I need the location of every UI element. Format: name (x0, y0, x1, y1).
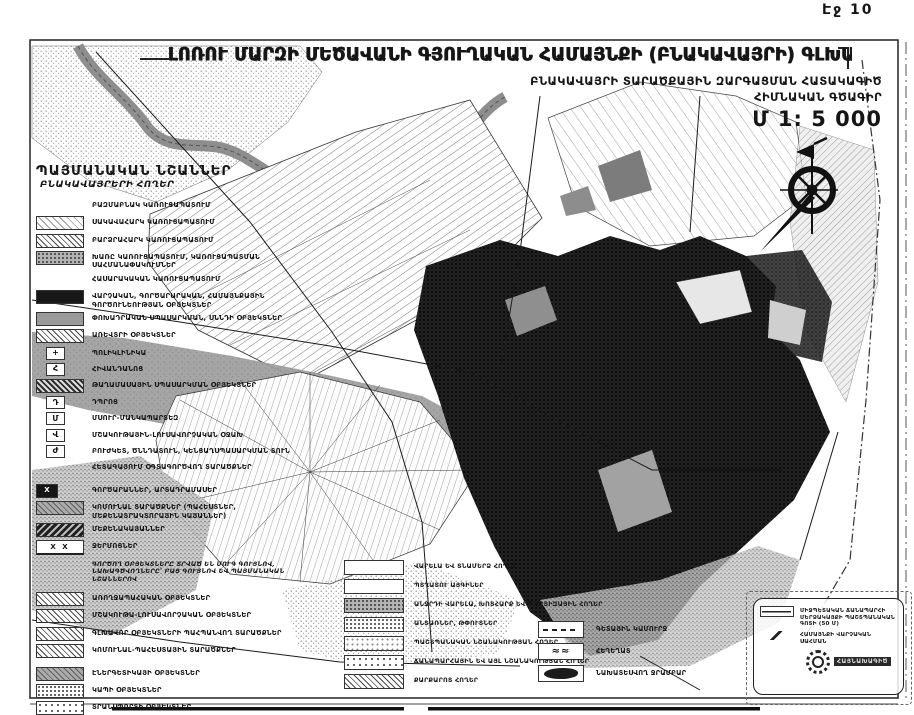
legend-item-label: ԳԵՏԱՅԻՆ ԿԱՄՈՒՐՋ (596, 621, 667, 633)
legend-swatch (344, 655, 404, 670)
legend-swatch (36, 523, 84, 537)
legend-swatch: X X (36, 540, 84, 555)
legend-item-label: ՀԱՄԱՅՆՔԻ ՎԱՐՉԱԿԱՆ ՍԱՀՄԱՆ (800, 630, 899, 645)
legend-swatch (36, 501, 84, 515)
legend-hydro-list: ԳԵՏԱՅԻՆ ԿԱՄՈՒՐՋ ≈≈ ՀԵՂԵՂԱՏ ՆԱԽԱՏԵՍՎՈՂ ՋՐ… (538, 616, 760, 682)
legend-item: ՎԱՐՉԱԿԱՆ, ԳՈՐԾԱՐԱՐԱԿԱՆ, ՀԱՄԱՅՆՔԱՅԻՆ ԳՈՐԾ… (36, 290, 298, 309)
legend-swatch-column: Ժ (36, 445, 92, 458)
legend-swatch: Վ (46, 429, 65, 442)
institute-logo-label: ՀԱՅՆԱԽԱԳԻԾ (834, 657, 891, 666)
legend-swatch-column (344, 636, 414, 651)
legend-item: ԷՆԵՐԳԵՏԻԿԱՅԻ ՕԲՅԵԿՏՆԵՐ (36, 667, 298, 681)
corner-box-list: ՄԻՋՊԵՏԱԿԱՆ ՃԱՆԱՊԱՐՀԻ ՄԵՐՁԱԿԱՅՔԻ ՊԱՇՏՊԱՆԱ… (760, 606, 899, 646)
legend-swatch-column (36, 609, 92, 623)
legend-item-label: ԱՌԵՎՏՐԻ ՕԲՅԵԿՏՆԵՐ (92, 329, 176, 339)
map-scale-label: Մ 1: 5 000 (468, 107, 882, 131)
legend-swatch (538, 665, 584, 682)
legend-swatch (344, 617, 404, 632)
legend-swatch-column (36, 684, 92, 698)
legend-swatch-column (538, 621, 596, 638)
gear-logo-icon (806, 650, 830, 674)
legend-swatch-column (344, 655, 414, 670)
legend-swatch-column (36, 216, 92, 230)
legend-swatch (36, 290, 84, 304)
legend-swatch-column (36, 592, 92, 606)
legend-swatch (344, 674, 404, 689)
legend-item-label: ԲԱԶՄԱԲՆԱԿ ԿԱՌՈՒՑԱՊԱՏՈՒՄ (92, 199, 211, 209)
legend-main: ՊԱՅՄԱՆԱԿԱՆ ՆՇԱՆՆԵՐ ԲՆԱԿԱՎԱՅՐԵՐԻ ՀՈՂԵՐ ԲԱ… (36, 163, 298, 715)
legend-swatch (36, 684, 84, 698)
legend-item-label: ԴՊՐՈՑ (92, 396, 118, 406)
legend-item-label: ՄԻՋՊԵՏԱԿԱՆ ՃԱՆԱՊԱՐՀԻ ՄԵՐՁԱԿԱՅՔԻ ՊԱՇՏՊԱՆԱ… (800, 606, 899, 628)
legend-item: ԱՌՈՂՋԱՊԱՀԱԿԱՆ ՕԲՅԵԿՏՆԵՐ (36, 592, 298, 606)
legend-swatch-column (36, 234, 92, 248)
legend-item: ՀԱՍԱՐԱԿԱԿԱՆ ԿԱՌՈՒՑԱՊԱՏՈՒՄ (36, 273, 298, 287)
legend-item: Մ ՄՍՈՒՐ-ՄԱՆԿԱՊԱՐՏԵԶ (36, 412, 298, 425)
legend-swatch-column (36, 290, 92, 304)
legend-swatch-column: ≈≈ (538, 643, 596, 660)
legend-item: ՄԻՋՊԵՏԱԿԱՆ ՃԱՆԱՊԱՐՀԻ ՄԵՐՁԱԿԱՅՔԻ ՊԱՇՏՊԱՆԱ… (760, 606, 899, 628)
legend-item: Դ ԴՊՐՈՑ (36, 396, 298, 409)
legend-item: ԳՈՐԾՈՂ ՕԲՅԵԿՏՆԵՐԸ ՏՐՎԱԾ ԵՆ ՄՈՒԳ ԳՈՒՅՆՈՎ,… (36, 559, 298, 584)
legend-swatch (36, 216, 84, 230)
legend-swatch-column (344, 674, 414, 689)
legend-item-label: ՎԱՐԵԼԱ ԵՎ ՏՆԱՄԵՐՁ ՀՈՂԵՐ (414, 560, 517, 570)
legend-item: ԿՈՄՈՒՆԱԼ ՏԱՐԱԾՔՆԵՐ (ՊԱՀԵՍՏՆԵՐ, ՄԵՔԵՆԱՏՐԱ… (36, 501, 298, 520)
legend-item-label: ՏՐԱՆՍՊՈՐՏԻ ՕԲՅԵԿՏՆԵՐ (92, 701, 191, 711)
map-title: ԼՈՌՈՒ ՄԱՐԶԻ ՄԵԾԱՎԱՆԻ ԳՅՈՒՂԱԿԱՆ ՀԱՄԱՅՆՔԻ … (168, 44, 852, 66)
legend-swatch-column (36, 523, 92, 537)
legend-item-label: ՋԵՐՄՈՑՆԵՐ (92, 540, 137, 550)
legend-swatch (36, 667, 84, 681)
legend-item-label: ՀԵՂԵՂԱՏ (596, 643, 631, 655)
legend-item: ՍԱԿԱՎԱՀԱՐԿ ԿԱՌՈՒՑԱՊԱՏՈՒՄ (36, 216, 298, 230)
legend-main-list: ԲԱԶՄԱԲՆԱԿ ԿԱՌՈՒՑԱՊԱՏՈՒՄ ՍԱԿԱՎԱՀԱՐԿ ԿԱՌՈՒ… (36, 196, 298, 715)
institute-logo-row: ՀԱՅՆԱԽԱԳԻԾ (806, 650, 899, 674)
legend-swatch: Հ (46, 363, 65, 376)
legend-item: ԽԱՌԸ ԿԱՌՈՒՑԱՊԱՏՈՒՄ, ԿԱՌՈՒՑԱՊԱՏՄԱՆ ՍԱՀՄԱՆ… (36, 251, 298, 270)
legend-swatch: Ժ (46, 445, 65, 458)
legend-item: ՏՐԱՆՍՊՈՐՏԻ ՕԲՅԵԿՏՆԵՐ (36, 701, 298, 715)
legend-swatch (760, 631, 792, 640)
legend-swatch (344, 560, 404, 575)
legend-swatch: ≈≈ (538, 643, 584, 660)
legend-item-label: ԽԱՌԸ ԿԱՌՈՒՑԱՊԱՏՈՒՄ, ԿԱՌՈՒՑԱՊԱՏՄԱՆ ՍԱՀՄԱՆ… (92, 251, 298, 270)
legend-swatch-column: Վ (36, 429, 92, 442)
legend-item: ԱՆՋՐԴԻ ՎԱՐԵԼԱ, ԽՈՏՀԱՐՔ ԵՎ ՊԱՐՏԻԶԱՅԻՆ ՀՈՂ… (344, 598, 606, 613)
legend-item: ՊՏՂԱՏՈՒ ԱՅԳԻՆԵՐ (344, 579, 606, 594)
legend-item-label: ՄՇԱԿՈՒԹԱՅԻՆ-ԼՈՒՍԱՎՈՐՉԱԿԱՆ ՕՋԱԽ (92, 429, 243, 439)
legend-swatch-column: Դ (36, 396, 92, 409)
legend-item-label: ԿԱՊԻ ՕԲՅԵԿՏՆԵՐ (92, 684, 162, 694)
legend-swatch-column (36, 667, 92, 681)
legend-item-label: ԳՈՐԾՈՂ ՕԲՅԵԿՏՆԵՐԸ ՏՐՎԱԾ ԵՆ ՄՈՒԳ ԳՈՒՅՆՈՎ,… (92, 559, 298, 584)
legend-item-label: ԷՆԵՐԳԵՏԻԿԱՅԻ ՕԲՅԵԿՏՆԵՐ (92, 667, 200, 677)
legend-swatch-column (344, 617, 414, 632)
legend-swatch (760, 606, 794, 617)
legend-swatch (36, 627, 84, 641)
legend-item-label: ԲԱՐՁՐԱՀԱՐԿ ԿԱՌՈՒՑԱՊԱՏՈՒՄ (92, 234, 214, 244)
legend-item-label: ԿՈՄՈՒՆԱԼ ՏԱՐԱԾՔՆԵՐ (ՊԱՀԵՍՏՆԵՐ, ՄԵՔԵՆԱՏՐԱ… (92, 501, 298, 520)
legend-swatch-column (36, 627, 92, 641)
legend-swatch-column (36, 501, 92, 515)
legend-swatch-column (36, 312, 92, 326)
legend-swatch (36, 312, 84, 326)
legend-item: Վ ՄՇԱԿՈՒԹԱՅԻՆ-ԼՈՒՍԱՎՈՐՉԱԿԱՆ ՕՋԱԽ (36, 429, 298, 442)
legend-item: X ԳՈՐԾԱՐԱՆՆԵՐ, ԱՐՏԱԴՐԱՄԱՍԵՐ (36, 484, 298, 498)
legend-item-label: ՆԱԽԱՏԵՍՎՈՂ ՋՐԱՄԲԱՐ (596, 665, 686, 677)
legend-item: ԿԱՊԻ ՕԲՅԵԿՏՆԵՐ (36, 684, 298, 698)
corner-stamp-box: ՄԻՋՊԵՏԱԿԱՆ ՃԱՆԱՊԱՐՀԻ ՄԵՐՁԱԿԱՅՔԻ ՊԱՇՏՊԱՆԱ… (753, 598, 904, 695)
legend-swatch (36, 701, 84, 715)
legend-swatch (344, 636, 404, 651)
legend-swatch-column (344, 560, 414, 575)
legend-item-label: ԱՆՏԱՌՆԵՐ, ԹՓՈՒՏՆԵՐ (414, 617, 497, 627)
legend-item: ԲԱԶՄԱԲՆԱԿ ԿԱՌՈՒՑԱՊԱՏՈՒՄ (36, 199, 298, 213)
legend-swatch: X (36, 484, 58, 498)
legend-item-label: ՍԱԿԱՎԱՀԱՐԿ ԿԱՌՈՒՑԱՊԱՏՈՒՄ (92, 216, 215, 226)
legend-item-label: ՓՈԽԱԴՐԱԿԱՆ ՍՊԱՍԱՐԿՄԱՆ, ՍՆՆԴԻ ՕԲՅԵԿՏՆԵՐ (92, 312, 282, 322)
legend-swatch-column (760, 606, 800, 617)
legend-item: ՎԱՐԵԼԱ ԵՎ ՏՆԱՄԵՐՁ ՀՈՂԵՐ (344, 560, 606, 575)
sheet-bottom-bar-right (428, 707, 760, 711)
legend-swatch (36, 379, 84, 393)
legend-item-label: ՎԱՐՉԱԿԱՆ, ԳՈՐԾԱՐԱՐԱԿԱՆ, ՀԱՄԱՅՆՔԱՅԻՆ ԳՈՐԾ… (92, 290, 298, 309)
legend-swatch-column (36, 379, 92, 393)
legend-item-label: ԲՈՒԺԿԵՏ, ԾՆՆԴԱՏՈՒՆ, ԿԵՆՑԱՂՍՊԱՍԱՐԿՄԱՆ ՏՈՒ… (92, 445, 290, 455)
legend-item-label: ԱՆՋՐԴԻ ՎԱՐԵԼԱ, ԽՈՏՀԱՐՔ ԵՎ ՊԱՐՏԻԶԱՅԻՆ ՀՈՂ… (414, 598, 603, 608)
legend-item-label: ՊԱՇՏՊԱՆԱԿԱՆ ՆՇԱՆԱԿՈՒԹՅԱՆ ՀՈՂԵՐ (414, 636, 558, 646)
legend-swatch (344, 579, 404, 594)
legend-item-label: ԿՈՄՈՒՆԱԼ-ՊԱՀԵՍՏԱՅԻՆ ՏԱՐԱԾՔՆԵՐ (92, 644, 236, 654)
legend-swatch: Դ (46, 396, 65, 409)
legend-swatch-column (344, 579, 414, 594)
subtitle-line-2: ՀԻՄՆԱԿԱՆ ԳԾԱԳԻՐ (468, 90, 882, 104)
legend-swatch (36, 609, 84, 623)
map-sheet: Էջ 10 ԼՈՌՈՒ ՄԱՐԶԻ ՄԵԾԱՎԱՆԻ ԳՅՈՒՂԱԿԱՆ ՀԱՄ… (0, 0, 914, 715)
legend-item: ԱՌԵՎՏՐԻ ՕԲՅԵԿՏՆԵՐ (36, 329, 298, 343)
legend-swatch-column: Հ (36, 363, 92, 376)
legend-item-label: ԳԼԽԱՎՈՐ ՕԲՅԵԿՏՆԵՐԻ ՊԱՀՊԱՆՎՈՂ ՏԱՐԱԾՔՆԵՐ (92, 627, 282, 637)
legend-item: ԳԵՏԱՅԻՆ ԿԱՄՈՒՐՋ (538, 621, 760, 638)
legend-swatch-column (760, 630, 800, 640)
legend-item-label: ՄՍՈՒՐ-ՄԱՆԿԱՊԱՐՏԵԶ (92, 412, 179, 422)
legend-swatch-column (344, 598, 414, 613)
legend-hydro: ԳԵՏԱՅԻՆ ԿԱՄՈՒՐՋ ≈≈ ՀԵՂԵՂԱՏ ՆԱԽԱՏԵՍՎՈՂ ՋՐ… (538, 616, 760, 682)
legend-swatch: Մ (46, 412, 65, 425)
legend-swatch-column: + (36, 347, 92, 360)
legend-item: ԲԱՐՁՐԱՀԱՐԿ ԿԱՌՈՒՑԱՊԱՏՈՒՄ (36, 234, 298, 248)
legend-swatch-column (36, 701, 92, 715)
legend-item: ԿՈՄՈՒՆԱԼ-ՊԱՀԵՍՏԱՅԻՆ ՏԱՐԱԾՔՆԵՐ (36, 644, 298, 658)
legend-item-label: ԱՌՈՂՋԱՊԱՀԱԿԱՆ ՕԲՅԵԿՏՆԵՐ (92, 592, 210, 602)
legend-item: X X ՋԵՐՄՈՑՆԵՐ (36, 540, 298, 555)
subtitle-line-1: ԲՆԱԿԱՎԱՅՐԻ ՏԱՐԱԾՔԱՅԻՆ ԶԱՐԳԱՑՄԱՆ ՀԱՏԱԿԱԳԻ… (468, 74, 882, 88)
legend-item-label: ՊՏՂԱՏՈՒ ԱՅԳԻՆԵՐ (414, 579, 484, 589)
legend-item-label: ՀԻՎԱՆԴԱՆՈՑ (92, 363, 143, 373)
legend-item-label: ԹԱՂԱՄԱՍԱՅԻՆ ՍՊԱՍԱՐԿՄԱՆ ՕԲՅԵԿՏՆԵՐ (92, 379, 256, 389)
legend-item: ՓՈԽԱԴՐԱԿԱՆ ՍՊԱՍԱՐԿՄԱՆ, ՍՆՆԴԻ ՕԲՅԵԿՏՆԵՐ (36, 312, 298, 326)
legend-swatch (36, 644, 84, 658)
legend-swatch-column (36, 199, 92, 213)
legend-swatch-column (36, 461, 92, 475)
legend-header: ՊԱՅՄԱՆԱԿԱՆ ՆՇԱՆՆԵՐ (36, 163, 298, 179)
legend-swatch (36, 329, 84, 343)
subtitle-block: ԲՆԱԿԱՎԱՅՐԻ ՏԱՐԱԾՔԱՅԻՆ ԶԱՐԳԱՑՄԱՆ ՀԱՏԱԿԱԳԻ… (468, 74, 882, 131)
legend-swatch (36, 234, 84, 248)
legend-item-label: ՀԱՍԱՐԱԿԱԿԱՆ ԿԱՌՈՒՑԱՊԱՏՈՒՄ (92, 273, 221, 283)
legend-item: Ժ ԲՈՒԺԿԵՏ, ԾՆՆԴԱՏՈՒՆ, ԿԵՆՑԱՂՍՊԱՍԱՐԿՄԱՆ Տ… (36, 445, 298, 458)
legend-item: ԹԱՂԱՄԱՍԱՅԻՆ ՍՊԱՍԱՐԿՄԱՆ ՕԲՅԵԿՏՆԵՐ (36, 379, 298, 393)
legend-swatch-column (36, 251, 92, 265)
legend-item: ՄՇԱԿՈՒԹԱ-ԼՈՒՍԱՎՈՐՉԱԿԱՆ ՕԲՅԵԿՏՆԵՐ (36, 609, 298, 623)
legend-swatch-column: Մ (36, 412, 92, 425)
legend-swatch-column: X (36, 484, 92, 498)
legend-swatch: + (46, 347, 65, 360)
legend-swatch-column: X X (36, 540, 92, 555)
legend-item-label: ՄԵՔԵՆԱԿԱՅԱՆՆԵՐ (92, 523, 165, 533)
legend-item-label: ՄՇԱԿՈՒԹԱ-ԼՈՒՍԱՎՈՐՉԱԿԱՆ ՕԲՅԵԿՏՆԵՐ (92, 609, 251, 619)
legend-swatch-column (36, 644, 92, 658)
legend-swatch (36, 251, 84, 265)
legend-item-label: ՊՈԼԻԿԼԻՆԻԿԱ (92, 347, 146, 357)
legend-item: ՀԱՄԱՅՆՔԻ ՎԱՐՉԱԿԱՆ ՍԱՀՄԱՆ (760, 630, 899, 645)
legend-subheader: ԲՆԱԿԱՎԱՅՐԵՐԻ ՀՈՂԵՐ (40, 180, 298, 190)
legend-item: ՀԵՏԱԳԱՅՈՒՄ ՕԳՏԱԳՈՐԾՎՈՂ ՏԱՐԱԾՔՆԵՐ (36, 461, 298, 475)
legend-swatch-column (36, 329, 92, 343)
legend-item: ՆԱԽԱՏԵՍՎՈՂ ՋՐԱՄԲԱՐ (538, 665, 760, 682)
legend-item: Հ ՀԻՎԱՆԴԱՆՈՑ (36, 363, 298, 376)
legend-item: + ՊՈԼԻԿԼԻՆԻԿԱ (36, 347, 298, 360)
legend-swatch (36, 592, 84, 606)
legend-swatch-column (538, 665, 596, 682)
legend-item-label: ՀԵՏԱԳԱՅՈՒՄ ՕԳՏԱԳՈՐԾՎՈՂ ՏԱՐԱԾՔՆԵՐ (92, 461, 252, 471)
legend-swatch (538, 621, 584, 638)
legend-item-label: ՔԱՐՔԱՐՈՏ ՀՈՂԵՐ (414, 674, 478, 684)
page-number-label: Էջ 10 (822, 2, 874, 18)
legend-item: ≈≈ ՀԵՂԵՂԱՏ (538, 643, 760, 660)
legend-item-label: ԳՈՐԾԱՐԱՆՆԵՐ, ԱՐՏԱԴՐԱՄԱՍԵՐ (92, 484, 217, 494)
legend-item: ԳԼԽԱՎՈՐ ՕԲՅԵԿՏՆԵՐԻ ՊԱՀՊԱՆՎՈՂ ՏԱՐԱԾՔՆԵՐ (36, 627, 298, 641)
legend-swatch-column (36, 273, 92, 287)
legend-item: ՄԵՔԵՆԱԿԱՅԱՆՆԵՐ (36, 523, 298, 537)
legend-swatch (344, 598, 404, 613)
legend-swatch-column (36, 559, 92, 573)
